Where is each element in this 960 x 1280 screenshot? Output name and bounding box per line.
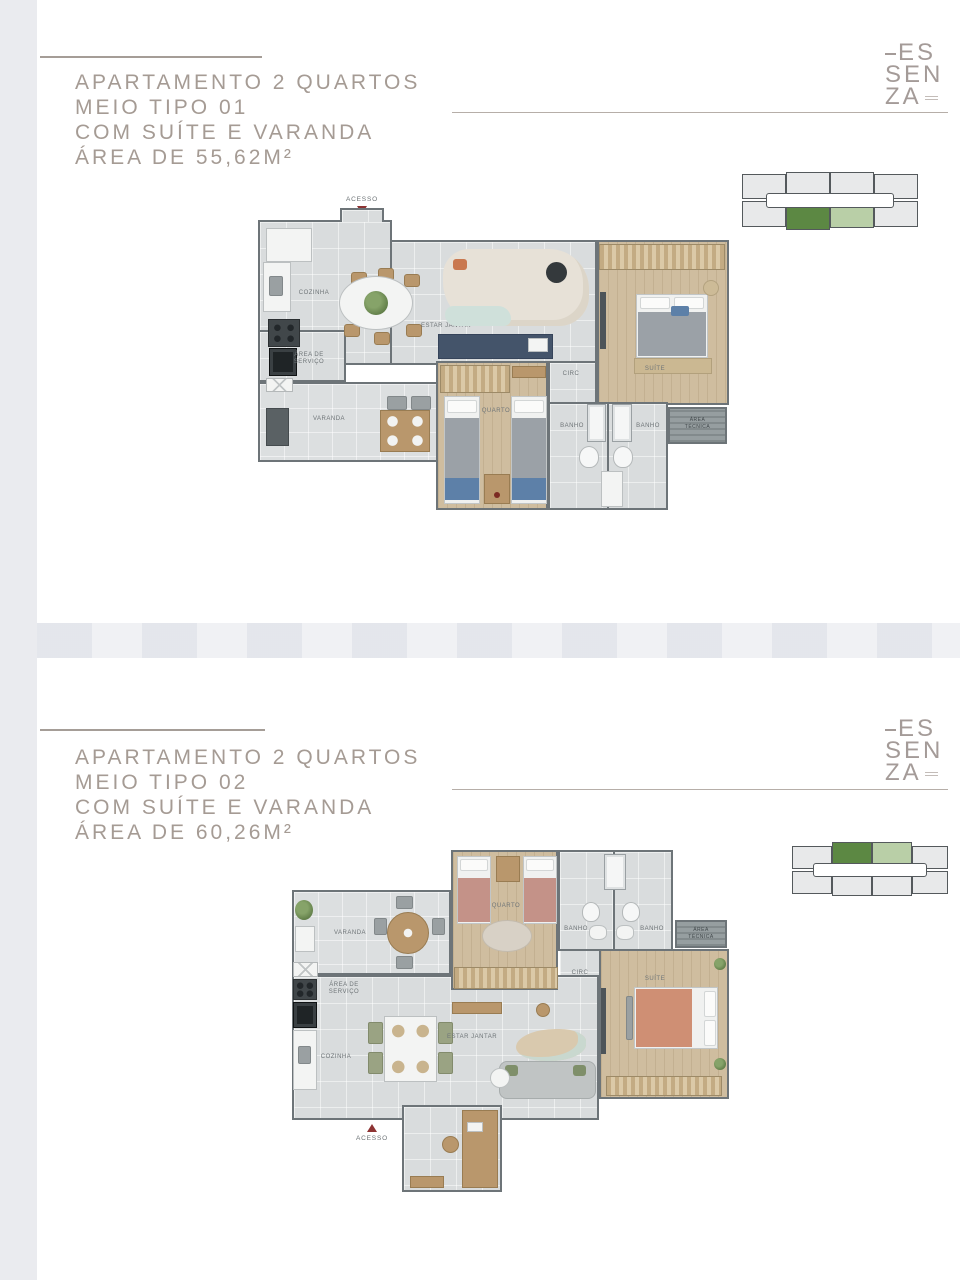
dining-chair bbox=[404, 274, 420, 287]
decorative-rule-short bbox=[40, 729, 265, 731]
accent-chair bbox=[536, 1003, 550, 1017]
logo-dash bbox=[885, 729, 896, 731]
bedroom2-rug bbox=[482, 920, 532, 952]
fridge bbox=[266, 228, 312, 262]
bed-foot-blanket bbox=[512, 478, 546, 500]
decorative-rule-short bbox=[40, 56, 262, 58]
essenza-logo: ES SEN ZA bbox=[885, 718, 943, 784]
balcony-counter bbox=[266, 408, 289, 446]
plan1-cozinha-label: COZINHA bbox=[284, 290, 344, 297]
toilet bbox=[613, 446, 633, 468]
toilet bbox=[622, 902, 640, 922]
plan2-servico-label-line1: ÁREA DE bbox=[316, 982, 372, 989]
bedroom2-wardrobe bbox=[440, 365, 510, 393]
plan1-tecnica-label-line2: TÉCNICA bbox=[670, 424, 725, 430]
suite-plant bbox=[714, 958, 726, 970]
plan1-servico-label-line2: SERVIÇO bbox=[276, 359, 342, 366]
logo-tagline bbox=[925, 94, 938, 102]
plan1-title: APARTAMENTO 2 QUARTOS MEIO TIPO 01 COM S… bbox=[75, 70, 420, 170]
sofa-chaise bbox=[445, 306, 511, 326]
dining-table bbox=[384, 1016, 437, 1082]
plan2-tecnica-label-line1: ÁREA bbox=[676, 927, 726, 933]
logo-tagline bbox=[925, 770, 938, 778]
bed-pillow bbox=[704, 1020, 716, 1046]
building-key-tipo01 bbox=[740, 172, 920, 232]
plan2-cozinha-label: COZINHA bbox=[306, 1054, 366, 1061]
plan2-title-line3: COM SUÍTE E VARANDA bbox=[75, 795, 420, 820]
nightstand bbox=[496, 856, 520, 882]
bed-foot-blanket bbox=[445, 478, 479, 500]
logo-line3: ZA bbox=[885, 759, 922, 786]
plan2-suite-label: SUÍTE bbox=[625, 976, 685, 983]
plan1-banho1-label: BANHO bbox=[552, 423, 592, 430]
section-divider-watermark bbox=[37, 623, 960, 658]
kitchen-sink bbox=[269, 276, 283, 296]
plan2-title-line2: MEIO TIPO 02 bbox=[75, 770, 420, 795]
plan1-quarto-label: QUARTO bbox=[466, 408, 526, 415]
balcony-chair bbox=[396, 956, 413, 969]
suite-wardrobe bbox=[606, 1076, 722, 1096]
cooktop bbox=[293, 979, 317, 1000]
toilet bbox=[582, 902, 600, 922]
plan1-suite-label: SUÍTE bbox=[625, 366, 685, 373]
bed-blanket bbox=[512, 418, 546, 478]
ottoman bbox=[490, 1068, 510, 1088]
desk-item bbox=[467, 1122, 483, 1132]
dining-chair bbox=[438, 1052, 453, 1074]
suite-plant bbox=[714, 1058, 726, 1070]
washing-machine bbox=[266, 378, 293, 392]
washing-machine bbox=[293, 962, 318, 977]
brochure-page: APARTAMENTO 2 QUARTOS MEIO TIPO 01 COM S… bbox=[0, 0, 960, 1280]
key-corridor bbox=[813, 863, 927, 877]
plan1-title-line3: COM SUÍTE E VARANDA bbox=[75, 120, 420, 145]
plan2-quarto-label: QUARTO bbox=[476, 903, 536, 910]
round-coffee-table bbox=[546, 262, 567, 283]
bed-blanket bbox=[524, 878, 556, 922]
oven bbox=[293, 1002, 317, 1028]
bed-pillow bbox=[460, 859, 488, 871]
logo-dash bbox=[885, 53, 896, 55]
plan2-banho2-label: BANHO bbox=[634, 926, 670, 933]
suite-tv-panel bbox=[601, 988, 606, 1054]
balcony-chair bbox=[411, 396, 431, 410]
desk-chair bbox=[442, 1136, 459, 1153]
toilet bbox=[579, 446, 599, 468]
logo-line3: ZA bbox=[885, 83, 922, 110]
building-key-tipo02 bbox=[790, 842, 950, 898]
plan1-entry-floor bbox=[340, 208, 384, 222]
plan1-varanda-label: VARANDA bbox=[299, 416, 359, 423]
table-centerpiece-plant bbox=[364, 291, 388, 315]
balcony-chair bbox=[396, 896, 413, 909]
tv-box bbox=[528, 338, 548, 352]
essenza-logo: ES SEN ZA bbox=[885, 42, 943, 108]
accent-pillow bbox=[453, 259, 467, 270]
plan2-varanda-label: VARANDA bbox=[320, 930, 380, 937]
bed-pillow bbox=[526, 859, 554, 871]
decorative-rule-long bbox=[452, 789, 948, 790]
bed-blanket bbox=[636, 989, 692, 1047]
bed-blanket bbox=[638, 312, 706, 356]
plan2-circ-label: CIRC bbox=[562, 970, 598, 977]
bedroom2-shelf bbox=[512, 366, 546, 378]
bedroom2-wardrobe bbox=[454, 967, 558, 989]
suite-wardrobe bbox=[599, 244, 725, 270]
plan1-servico-label-line1: ÁREA DE bbox=[276, 352, 342, 359]
floor-plan-tipo02: QUARTO BANHO BANHO ÁREA TÉCNICA CIRC SUÍ… bbox=[286, 846, 746, 1206]
bathroom-sink bbox=[616, 925, 634, 940]
balcony-chair bbox=[387, 396, 407, 410]
balcony-cabinet bbox=[295, 926, 315, 952]
plan2-banho1-label: BANHO bbox=[558, 926, 594, 933]
dining-chair bbox=[368, 1022, 383, 1044]
bed-blanket bbox=[458, 878, 490, 922]
plan1-title-line1: APARTAMENTO 2 QUARTOS bbox=[75, 70, 420, 95]
plan2-title: APARTAMENTO 2 QUARTOS MEIO TIPO 02 COM S… bbox=[75, 745, 420, 845]
bed-blanket bbox=[445, 418, 479, 478]
plan2-estar-label: ESTAR JANTAR bbox=[442, 1034, 502, 1041]
plan1-area-value: ÁREA DE 55,62M² bbox=[75, 145, 420, 170]
plan1-circulation-floor bbox=[548, 361, 597, 404]
plan2-entry-arrow-icon bbox=[367, 1124, 377, 1132]
plan1-banho2-label: BANHO bbox=[628, 423, 668, 430]
key-corridor bbox=[766, 193, 894, 208]
decorative-rule-long bbox=[452, 112, 948, 113]
entry-console bbox=[410, 1176, 444, 1188]
plan2-tecnica-label-line2: TÉCNICA bbox=[676, 934, 726, 940]
balcony-chair bbox=[432, 918, 445, 935]
nightstand bbox=[484, 474, 510, 504]
plan2-servico-label-line2: SERVIÇO bbox=[316, 989, 372, 996]
balcony-table bbox=[380, 410, 430, 452]
plan2-area-value: ÁREA DE 60,26M² bbox=[75, 820, 420, 845]
console-sideboard bbox=[452, 1002, 502, 1014]
plan1-tecnica-label-line1: ÁREA bbox=[670, 417, 725, 423]
cooktop bbox=[268, 319, 300, 347]
plan2-title-line1: APARTAMENTO 2 QUARTOS bbox=[75, 745, 420, 770]
balcony-plant bbox=[295, 900, 313, 920]
nightstand-decor bbox=[494, 492, 500, 498]
dining-chair bbox=[368, 1052, 383, 1074]
balcony-round-table bbox=[387, 912, 429, 954]
bed-pillow bbox=[640, 297, 670, 309]
suite-pouf bbox=[703, 280, 719, 296]
page-left-margin bbox=[0, 0, 37, 1280]
bed-accent-pillow bbox=[671, 306, 689, 316]
plan1-acesso-label: ACESSO bbox=[327, 196, 397, 203]
bathtub bbox=[601, 471, 623, 507]
plan1-circ-label: CIRC bbox=[551, 371, 591, 378]
suite-tv-panel bbox=[600, 292, 606, 349]
suite-bench bbox=[626, 996, 633, 1040]
sofa-pillow bbox=[573, 1065, 586, 1076]
dining-chair bbox=[374, 332, 390, 345]
shower-stall bbox=[604, 854, 626, 890]
floor-plan-tipo01: ACESSO COZINHA ÁREA DE SERVIÇO ESTAR bbox=[256, 196, 736, 514]
plan1-title-line2: MEIO TIPO 01 bbox=[75, 95, 420, 120]
plan2-acesso-label: ACESSO bbox=[337, 1135, 407, 1142]
bed-pillow bbox=[704, 991, 716, 1017]
